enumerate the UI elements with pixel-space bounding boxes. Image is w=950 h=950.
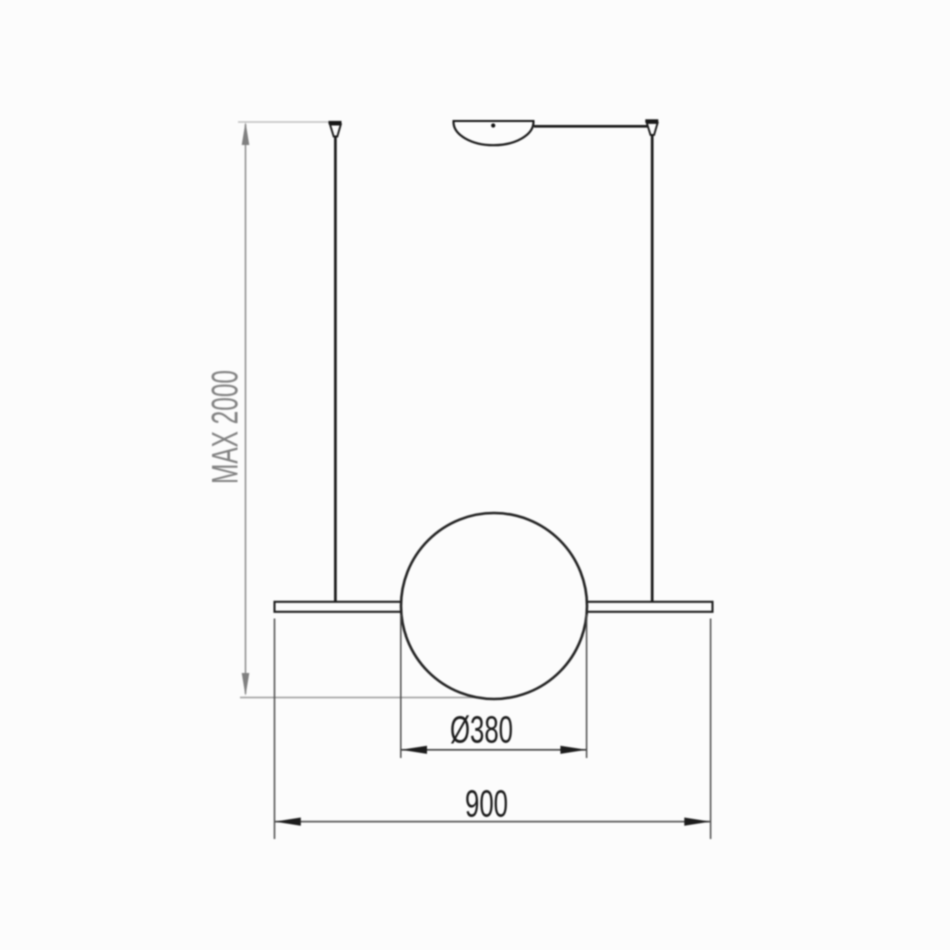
svg-text:900: 900 — [465, 784, 508, 826]
svg-text:Ø380: Ø380 — [450, 710, 513, 752]
svg-text:MAX 2000: MAX 2000 — [205, 370, 246, 484]
